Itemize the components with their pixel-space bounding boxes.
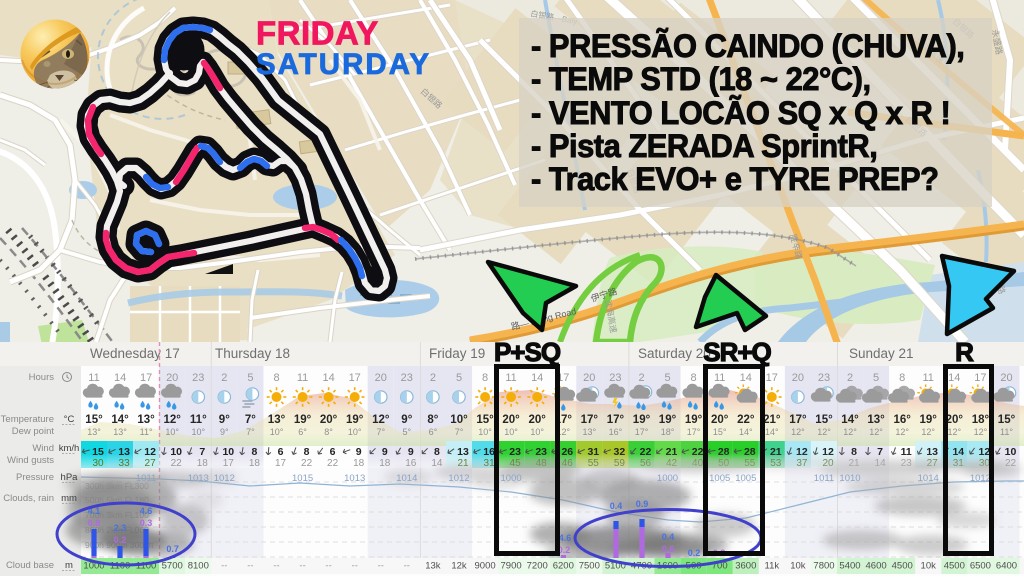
svg-text:- Track EVO+ e TYRE PREP?: - Track EVO+ e TYRE PREP? [531,160,939,197]
svg-text:0.2: 0.2 [114,535,127,545]
svg-text:22: 22 [301,458,313,469]
svg-text:14: 14 [948,372,960,384]
svg-text:14°: 14° [739,427,753,437]
svg-text:18: 18 [353,458,365,469]
svg-text:6°: 6° [429,427,438,437]
svg-text:10k: 10k [790,561,806,572]
svg-text:12°: 12° [817,427,831,437]
svg-text:22: 22 [327,458,339,469]
svg-text:8°: 8° [427,414,438,426]
svg-text:1012: 1012 [214,473,235,484]
svg-text:14: 14 [322,372,334,384]
svg-text:17: 17 [275,458,287,469]
svg-text:13°: 13° [113,427,127,437]
svg-text:8: 8 [304,446,310,458]
svg-text:9: 9 [356,446,362,458]
svg-text:--: -- [273,561,279,572]
svg-text:17°: 17° [581,414,599,426]
svg-text:6400: 6400 [996,561,1017,572]
svg-text:7°: 7° [376,427,385,437]
svg-text:14°: 14° [841,414,859,426]
svg-text:11°: 11° [190,414,207,426]
svg-text:12: 12 [144,446,156,458]
svg-text:Pressure: Pressure [16,472,54,483]
svg-text:1014: 1014 [396,473,417,484]
svg-text:9°: 9° [220,427,229,437]
svg-text:--: -- [221,561,227,572]
svg-text:14°: 14° [765,427,779,437]
svg-text:7500: 7500 [579,561,600,572]
svg-text:10°: 10° [504,427,518,437]
svg-text:Dew point: Dew point [12,426,55,437]
svg-text:10: 10 [1005,446,1017,458]
svg-text:17: 17 [974,372,986,384]
svg-text:16: 16 [405,458,417,469]
svg-text:6: 6 [278,446,284,458]
svg-text:19°: 19° [659,414,677,426]
svg-text:Friday 19: Friday 19 [429,346,485,361]
svg-text:SR+Q: SR+Q [703,337,771,367]
svg-text:km/h: km/h [59,443,80,454]
svg-text:Sunday 21: Sunday 21 [849,346,914,361]
svg-text:23: 23 [509,446,521,458]
svg-text:13: 13 [926,446,938,458]
svg-text:17°: 17° [607,414,625,426]
svg-text:14°: 14° [111,414,129,426]
svg-text:7800: 7800 [813,561,834,572]
svg-text:10: 10 [170,446,182,458]
svg-text:17°: 17° [687,427,701,437]
svg-text:21°: 21° [763,414,781,426]
svg-text:Clouds, rain: Clouds, rain [3,493,54,504]
svg-text:6°: 6° [298,427,307,437]
svg-text:13°: 13° [87,427,101,437]
svg-text:15°: 15° [713,427,727,437]
svg-text:11°: 11° [140,427,153,437]
svg-text:20: 20 [1000,372,1012,384]
svg-text:5700: 5700 [162,561,183,572]
svg-text:9000: 9000 [475,561,496,572]
svg-text:4.6: 4.6 [559,533,572,543]
svg-text:19°: 19° [685,414,703,426]
svg-text:6500: 6500 [970,561,991,572]
svg-text:0.7: 0.7 [166,544,179,554]
svg-text:8: 8 [691,372,697,384]
svg-text:22: 22 [692,446,704,458]
svg-text:22: 22 [640,446,652,458]
svg-text:SATURDAY: SATURDAY [256,48,431,81]
svg-text:14: 14 [531,372,543,384]
svg-text:--: -- [325,561,331,572]
svg-text:20°: 20° [946,414,964,426]
svg-text:11: 11 [901,446,912,458]
svg-text:Wednesday 17: Wednesday 17 [90,346,180,361]
svg-text:21: 21 [770,446,782,458]
svg-text:12°: 12° [947,427,961,437]
svg-text:- VENTO LOCÃO SQ x Q x R !: - VENTO LOCÃO SQ x Q x R ! [531,94,950,131]
svg-text:5400: 5400 [839,561,860,572]
svg-text:- TEMP STD (18 ~ 22°C),: - TEMP STD (18 ~ 22°C), [531,60,871,97]
svg-text:7200: 7200 [527,561,548,572]
svg-text:17°: 17° [789,414,807,426]
svg-text:11: 11 [505,372,516,384]
svg-text:10k: 10k [921,561,937,572]
svg-text:18°: 18° [661,427,675,437]
svg-text:11: 11 [922,372,933,384]
svg-text:7: 7 [199,446,205,458]
svg-text:--: -- [378,561,384,572]
svg-text:12°: 12° [164,414,182,426]
svg-text:12°: 12° [843,427,857,437]
svg-text:1015: 1015 [292,473,313,484]
svg-text:1011: 1011 [814,473,834,484]
svg-text:16°: 16° [609,427,623,437]
svg-text:7900: 7900 [501,561,522,572]
svg-text:- PRESSÃO CAINDO (CHUVA),: - PRESSÃO CAINDO (CHUVA), [531,27,964,64]
svg-text:8100: 8100 [188,561,209,572]
svg-text:3600: 3600 [735,561,756,572]
svg-text:0.4: 0.4 [610,501,623,511]
svg-text:5: 5 [247,372,253,384]
svg-text:P+SQ: P+SQ [494,337,561,367]
svg-text:28: 28 [744,446,756,458]
svg-text:12°: 12° [921,427,935,437]
svg-text:17: 17 [349,372,361,384]
svg-text:1005: 1005 [735,473,756,484]
svg-text:4.6: 4.6 [140,506,153,516]
svg-text:1012: 1012 [970,473,991,484]
svg-text:23: 23 [192,372,204,384]
svg-text:8: 8 [482,372,488,384]
svg-text:7: 7 [877,446,883,458]
svg-text:1011: 1011 [136,473,156,484]
svg-text:8: 8 [899,372,905,384]
svg-text:10°: 10° [530,427,544,437]
svg-text:--: -- [352,561,358,572]
svg-text:1013: 1013 [188,473,209,484]
svg-text:13k: 13k [425,561,441,572]
svg-text:5: 5 [664,372,670,384]
svg-text:4500: 4500 [892,561,913,572]
svg-text:1014: 1014 [918,473,939,484]
svg-text:12°: 12° [895,427,909,437]
svg-text:11: 11 [88,372,99,384]
svg-text:13°: 13° [582,427,596,437]
svg-text:1000: 1000 [657,473,678,484]
svg-text:8: 8 [434,446,440,458]
svg-text:21: 21 [666,446,678,458]
svg-text:9°: 9° [219,414,230,426]
svg-text:23: 23 [818,372,830,384]
svg-text:Wind gusts: Wind gusts [7,455,54,466]
svg-text:1005: 1005 [709,473,730,484]
svg-text:15°: 15° [476,414,494,426]
svg-text:0.4: 0.4 [662,532,675,542]
svg-text:16°: 16° [894,414,912,426]
svg-text:19°: 19° [633,414,651,426]
svg-text:17: 17 [766,372,778,384]
svg-text:20°: 20° [529,414,547,426]
svg-text:27: 27 [145,458,157,469]
svg-text:23: 23 [535,446,547,458]
svg-text:6: 6 [330,446,336,458]
svg-text:hPa: hPa [61,472,79,483]
svg-text:15°: 15° [998,414,1016,426]
svg-text:0.2: 0.2 [688,548,701,558]
svg-text:12°: 12° [791,427,805,437]
svg-text:5: 5 [456,372,462,384]
svg-text:°C: °C [64,414,75,425]
svg-text:20°: 20° [711,414,729,426]
svg-text:m: m [65,560,73,571]
svg-text:9°: 9° [401,414,412,426]
svg-text:16: 16 [483,446,495,458]
svg-text:31: 31 [587,446,599,458]
svg-text:12: 12 [979,446,991,458]
svg-text:17°: 17° [635,427,649,437]
svg-text:8°: 8° [324,427,333,437]
svg-text:1000: 1000 [501,473,522,484]
svg-text:10°: 10° [478,427,492,437]
svg-text:11°: 11° [1000,427,1013,437]
svg-text:4500: 4500 [944,561,965,572]
svg-text:14: 14 [114,372,126,384]
svg-text:20: 20 [166,372,178,384]
svg-text:9: 9 [408,446,414,458]
svg-text:--: -- [247,561,253,572]
svg-text:11k: 11k [764,561,779,572]
svg-text:20: 20 [375,372,387,384]
svg-text:13°: 13° [867,414,885,426]
svg-text:7°: 7° [246,427,255,437]
svg-text:13: 13 [457,446,469,458]
svg-text:--: -- [299,561,305,572]
svg-text:14: 14 [952,446,964,458]
svg-text:17: 17 [140,372,152,384]
svg-text:Thursday 18: Thursday 18 [215,346,290,361]
svg-text:23: 23 [401,372,413,384]
svg-text:26: 26 [561,446,573,458]
svg-text:2: 2 [221,372,227,384]
svg-text:10°: 10° [191,427,205,437]
svg-text:0.3: 0.3 [140,518,153,528]
svg-text:Hours: Hours [29,372,55,383]
svg-text:18°: 18° [972,414,990,426]
svg-text:12: 12 [796,446,808,458]
svg-text:17: 17 [223,458,235,469]
svg-text:10: 10 [222,446,234,458]
svg-text:19°: 19° [294,414,312,426]
svg-text:20°: 20° [320,414,338,426]
svg-text:Wind: Wind [32,443,54,454]
svg-text:2: 2 [430,372,436,384]
svg-text:22°: 22° [737,414,755,426]
svg-text:mm: mm [61,493,77,504]
svg-text:2.3: 2.3 [114,523,127,533]
svg-text:- Pista ZERADA SprintR,: - Pista ZERADA SprintR, [531,127,877,164]
svg-text:10°: 10° [270,427,284,437]
svg-text:11: 11 [297,372,308,384]
svg-text:Cloud base: Cloud base [6,560,54,571]
svg-text:15: 15 [92,446,104,458]
svg-text:7°: 7° [455,427,464,437]
svg-text:28: 28 [718,446,730,458]
svg-text:Saturday 20: Saturday 20 [638,346,711,361]
svg-text:10°: 10° [348,427,362,437]
svg-text:23: 23 [609,372,621,384]
svg-text:6200: 6200 [553,561,574,572]
svg-text:0.9: 0.9 [636,499,649,509]
svg-text:FRIDAY: FRIDAY [256,15,379,52]
svg-text:14: 14 [740,372,752,384]
svg-text:4600: 4600 [866,561,887,572]
svg-text:20: 20 [792,372,804,384]
svg-text:20°: 20° [502,414,520,426]
svg-text:8: 8 [851,446,857,458]
svg-text:1012: 1012 [448,473,469,484]
svg-text:0.6: 0.6 [662,544,675,554]
svg-text:33: 33 [119,458,131,469]
svg-text:18: 18 [249,458,261,469]
svg-text:30: 30 [92,458,104,469]
svg-text:0.8: 0.8 [88,518,101,528]
svg-text:9: 9 [382,446,388,458]
svg-text:13°: 13° [137,414,155,426]
svg-text:Temperature: Temperature [1,414,54,425]
svg-text:32: 32 [614,446,626,458]
svg-text:10°: 10° [450,414,468,426]
svg-text:15°: 15° [85,414,103,426]
svg-text:19°: 19° [920,414,938,426]
svg-text:15°: 15° [815,414,833,426]
svg-text:2: 2 [847,372,853,384]
svg-text:8: 8 [251,446,257,458]
svg-text:8: 8 [273,372,279,384]
svg-text:18: 18 [379,458,391,469]
svg-text:12: 12 [822,446,834,458]
svg-text:R: R [955,337,974,367]
svg-text:13°: 13° [268,414,286,426]
svg-text:7°: 7° [245,414,256,426]
svg-text:19°: 19° [346,414,364,426]
svg-text:18: 18 [197,458,209,469]
svg-text:12°: 12° [974,427,988,437]
svg-text:2: 2 [638,372,644,384]
svg-text:5: 5 [873,372,879,384]
svg-text:13: 13 [118,446,130,458]
svg-text:12k: 12k [451,561,467,572]
svg-text:22: 22 [171,458,183,469]
svg-text:12°: 12° [372,414,390,426]
svg-text:10°: 10° [165,427,179,437]
svg-text:5°: 5° [402,427,411,437]
svg-text:1013: 1013 [344,473,365,484]
svg-text:11: 11 [714,372,725,384]
svg-text:12°: 12° [869,427,883,437]
svg-text:--: -- [404,561,410,572]
svg-text:1010: 1010 [839,473,860,484]
svg-text:20: 20 [583,372,595,384]
